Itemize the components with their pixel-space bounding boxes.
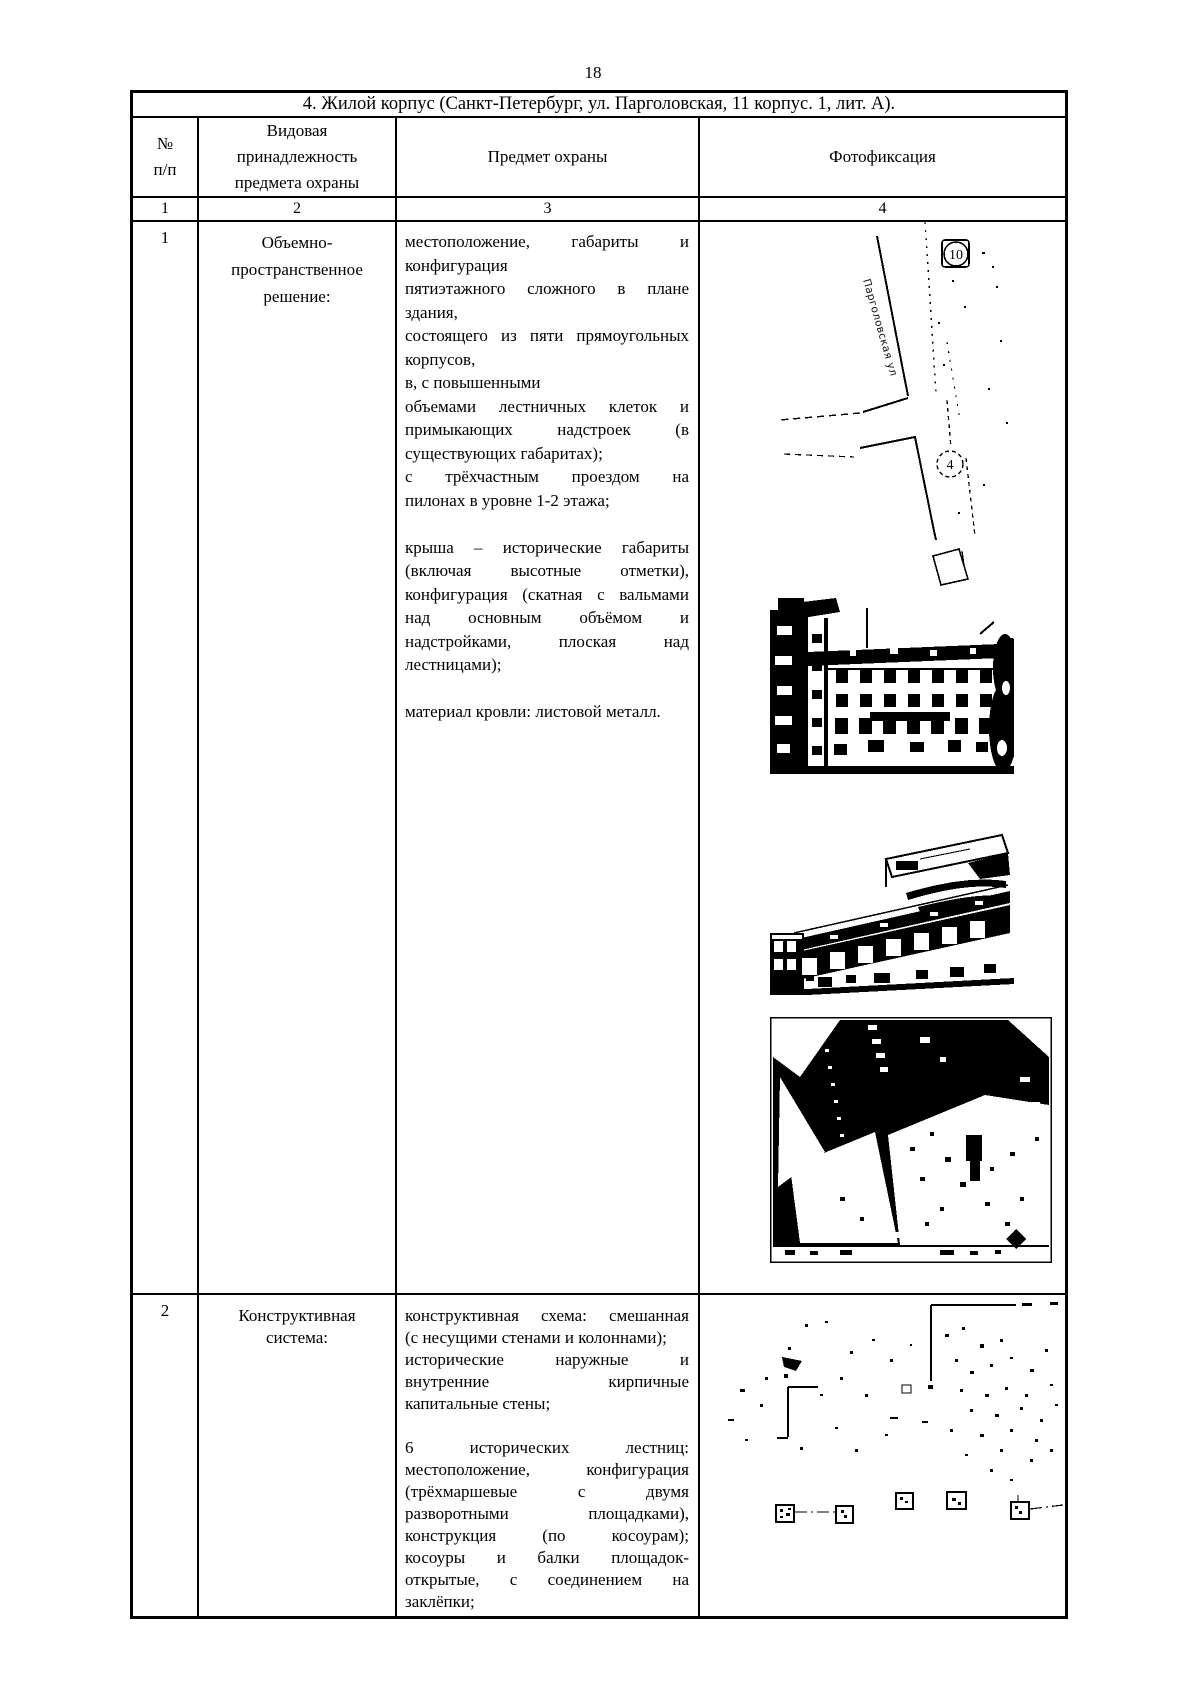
plan-column-dots bbox=[780, 1497, 1022, 1518]
text-line: местоположение, конфигурация bbox=[405, 1459, 689, 1481]
floor-plan-image bbox=[700, 1299, 1063, 1611]
text-line: здания, bbox=[405, 301, 689, 325]
text-line: (включая высотные отметки), bbox=[405, 559, 689, 583]
text-line bbox=[405, 677, 689, 701]
text-line: № bbox=[133, 131, 197, 157]
text-line: система: bbox=[199, 1327, 395, 1349]
text-line: разворотными площадками), bbox=[405, 1503, 689, 1525]
column-number-4: 4 bbox=[698, 198, 1065, 220]
text-line: открытые, с соединением на bbox=[405, 1569, 689, 1591]
text-line: материал кровли: листовой металл. bbox=[405, 700, 689, 724]
text-line: местоположение, габариты и bbox=[405, 230, 689, 254]
text-line: Фотофиксация bbox=[700, 144, 1065, 170]
text-line: Конструктивная bbox=[199, 1305, 395, 1327]
table-title: 4. Жилой корпус (Санкт-Петербург, ул. Па… bbox=[133, 93, 1065, 118]
text-line: над основным объёмом и bbox=[405, 606, 689, 630]
map-marker-10: 10 bbox=[949, 248, 963, 263]
text-line: Объемно- bbox=[199, 229, 395, 256]
site-plan-map-image: Парголовская ул 10 4 bbox=[700, 222, 1063, 588]
column-number-3: 3 bbox=[395, 198, 698, 220]
row2-category: Конструктивнаясистема: bbox=[197, 1295, 395, 1616]
text-line: конфигурация (скатная с вальмами bbox=[405, 583, 689, 607]
text-line: в, с повышенными bbox=[405, 371, 689, 395]
text-line: 6 исторических лестниц: bbox=[405, 1437, 689, 1459]
text-line bbox=[405, 512, 689, 536]
column-numbers-row: 1 2 3 4 bbox=[133, 198, 1065, 222]
text-line: крыша – исторические габариты bbox=[405, 536, 689, 560]
column-number-1: 1 bbox=[133, 198, 197, 220]
facade-photo-image bbox=[770, 598, 1014, 774]
text-line: (с несущими стенами и колоннами); bbox=[405, 1327, 689, 1349]
table-row-1: 1 Объемно-пространственноерешение: место… bbox=[133, 222, 1065, 1295]
text-line bbox=[405, 1415, 689, 1437]
row2-subject-text: конструктивная схема: смешанная(с несущи… bbox=[395, 1295, 698, 1616]
row1-photo-cell: Парголовская ул 10 4 bbox=[698, 222, 1065, 1293]
table-row-2: 2 Конструктивнаясистема: конструктивная … bbox=[133, 1295, 1065, 1616]
text-line: надстройками, плоская над bbox=[405, 630, 689, 654]
text-line: п/п bbox=[133, 157, 197, 183]
map-noise-dots bbox=[938, 252, 1008, 514]
text-line: объемами лестничных клеток и bbox=[405, 395, 689, 419]
text-line: с трёхчастным проездом на bbox=[405, 465, 689, 489]
row1-number: 1 bbox=[133, 222, 197, 1293]
text-line: пространственное bbox=[199, 256, 395, 283]
aerial-photo-image bbox=[770, 1017, 1052, 1263]
text-line: существующих габаритах); bbox=[405, 442, 689, 466]
header-col-category: Видоваяпринадлежностьпредмета охраны bbox=[197, 118, 395, 196]
text-line: принадлежность bbox=[199, 144, 395, 170]
street-name-label: Парголовская ул bbox=[860, 278, 899, 378]
text-line: корпусов, bbox=[405, 348, 689, 372]
header-col-photo: Фотофиксация bbox=[698, 118, 1065, 196]
text-line: примыкающих надстроек (в bbox=[405, 418, 689, 442]
text-line: заклёпки; bbox=[405, 1591, 689, 1613]
header-col-num: №п/п bbox=[133, 118, 197, 196]
row1-subject-text: местоположение, габариты иконфигурацияпя… bbox=[395, 222, 698, 1293]
text-line: предмета охраны bbox=[199, 170, 395, 196]
text-line: пилонах в уровне 1-2 этажа; bbox=[405, 489, 689, 513]
header-col-subject: Предмет охраны bbox=[395, 118, 698, 196]
row2-number: 2 bbox=[133, 1295, 197, 1616]
page-number: 18 bbox=[124, 62, 1062, 84]
row1-category: Объемно-пространственноерешение: bbox=[197, 222, 395, 1293]
protection-subjects-table: 4. Жилой корпус (Санкт-Петербург, ул. Па… bbox=[130, 90, 1068, 1619]
text-line: исторические наружные и bbox=[405, 1349, 689, 1371]
column-number-2: 2 bbox=[197, 198, 395, 220]
text-line: Видовая bbox=[199, 118, 395, 144]
text-line: пятиэтажного сложного в плане bbox=[405, 277, 689, 301]
table-header-row: №п/п Видоваяпринадлежностьпредмета охран… bbox=[133, 118, 1065, 198]
text-line: Предмет охраны bbox=[397, 144, 698, 170]
row2-photo-cell bbox=[698, 1295, 1065, 1616]
roof-photo-image bbox=[770, 829, 1014, 995]
plan-noise-dots bbox=[728, 1302, 1058, 1481]
text-line: конструкция (по косоурам); bbox=[405, 1525, 689, 1547]
text-line: косоуры и балки площадок- bbox=[405, 1547, 689, 1569]
text-line: лестницами); bbox=[405, 653, 689, 677]
map-marker-4: 4 bbox=[947, 458, 954, 473]
text-line: состоящего из пяти прямоугольных bbox=[405, 324, 689, 348]
text-line: капитальные стены; bbox=[405, 1393, 689, 1415]
document-page: 18 4. Жилой корпус (Санкт-Петербург, ул.… bbox=[0, 0, 1200, 1697]
text-line: конструктивная схема: смешанная bbox=[405, 1305, 689, 1327]
text-line: (трёхмаршевые с двумя bbox=[405, 1481, 689, 1503]
text-line: внутренние кирпичные bbox=[405, 1371, 689, 1393]
text-line: решение: bbox=[199, 283, 395, 310]
text-line: конфигурация bbox=[405, 254, 689, 278]
